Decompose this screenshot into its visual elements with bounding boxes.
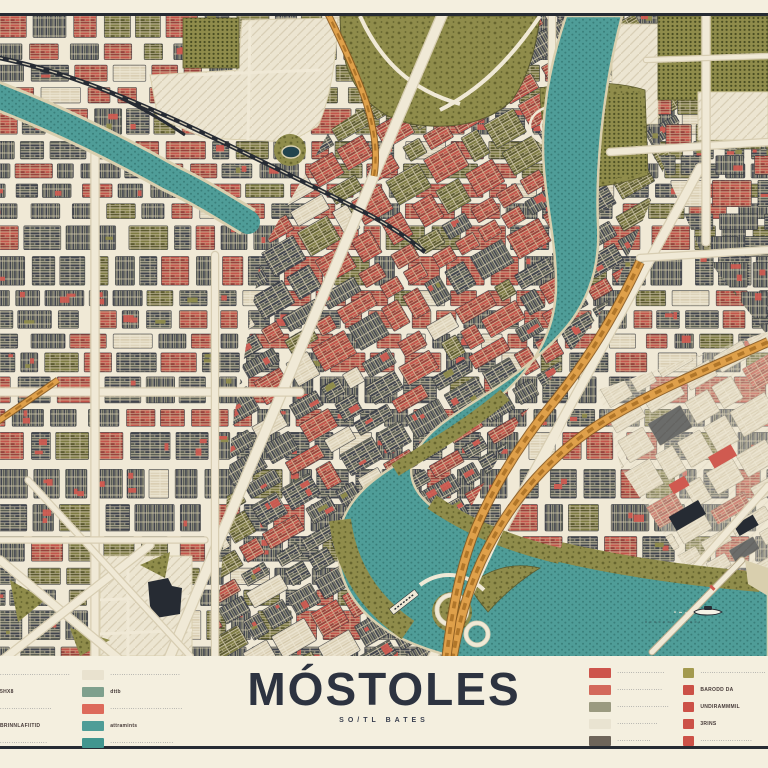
legend-label: ·······················: [617, 705, 669, 710]
legend-label: ····················: [617, 688, 662, 693]
legend-swatch: [683, 685, 694, 695]
legend-swatch: [683, 736, 694, 746]
legend-right: ········································…: [589, 668, 766, 746]
city-map: [0, 16, 768, 656]
legend-item: BARODD DA: [683, 685, 766, 695]
bottom-margin: [0, 749, 768, 768]
legend-label: ····························: [110, 741, 173, 746]
legend-label: ·····················: [0, 741, 48, 746]
legend-band: ·······························5HX8·····…: [0, 656, 768, 746]
legend-item: ··················: [589, 719, 669, 729]
legend-label: UNDIRAMMMIL: [700, 705, 740, 710]
legend-swatch: [589, 719, 611, 729]
legend-label: ·····················: [617, 671, 665, 676]
legend-label: BARODD DA: [700, 688, 733, 693]
top-margin: [0, 0, 768, 13]
legend-item: ·····················: [0, 738, 70, 748]
legend-item: ·······················: [589, 702, 669, 712]
legend-label: ···············: [617, 739, 651, 744]
legend-item: UNDIRAMMMIL: [683, 702, 766, 712]
legend-label: ·····························: [700, 671, 766, 676]
legend-item: ·····················: [589, 668, 669, 678]
legend-swatch: [683, 668, 694, 678]
legend-label: 3RINS: [700, 722, 716, 727]
map-poster: ·······························5HX8·····…: [0, 0, 768, 768]
legend-swatch: [589, 685, 611, 695]
legend-label: ·······················: [700, 739, 752, 744]
legend-label: ··················: [617, 722, 658, 727]
legend-swatch: [589, 668, 611, 678]
legend-item: ·····························: [683, 668, 766, 678]
legend-item: ····························: [82, 738, 182, 748]
legend-label: attramints: [110, 724, 137, 729]
legend-swatch: [82, 738, 104, 748]
pond: [282, 146, 300, 158]
map-canvas: [0, 16, 768, 656]
legend-right-small-column: ·····························BARODD DAUN…: [683, 668, 766, 746]
legend-swatch: [683, 702, 694, 712]
legend-item: 3RINS: [683, 719, 766, 729]
legend-swatch: [589, 736, 611, 746]
legend-swatch: [589, 702, 611, 712]
legend-right-main-column: ········································…: [589, 668, 669, 746]
legend-item: ·······················: [683, 736, 766, 746]
legend-swatch: [683, 719, 694, 729]
legend-item: ···············: [589, 736, 669, 746]
legend-label: BRINNLAFIITID: [0, 724, 40, 729]
legend-item: ····················: [589, 685, 669, 695]
